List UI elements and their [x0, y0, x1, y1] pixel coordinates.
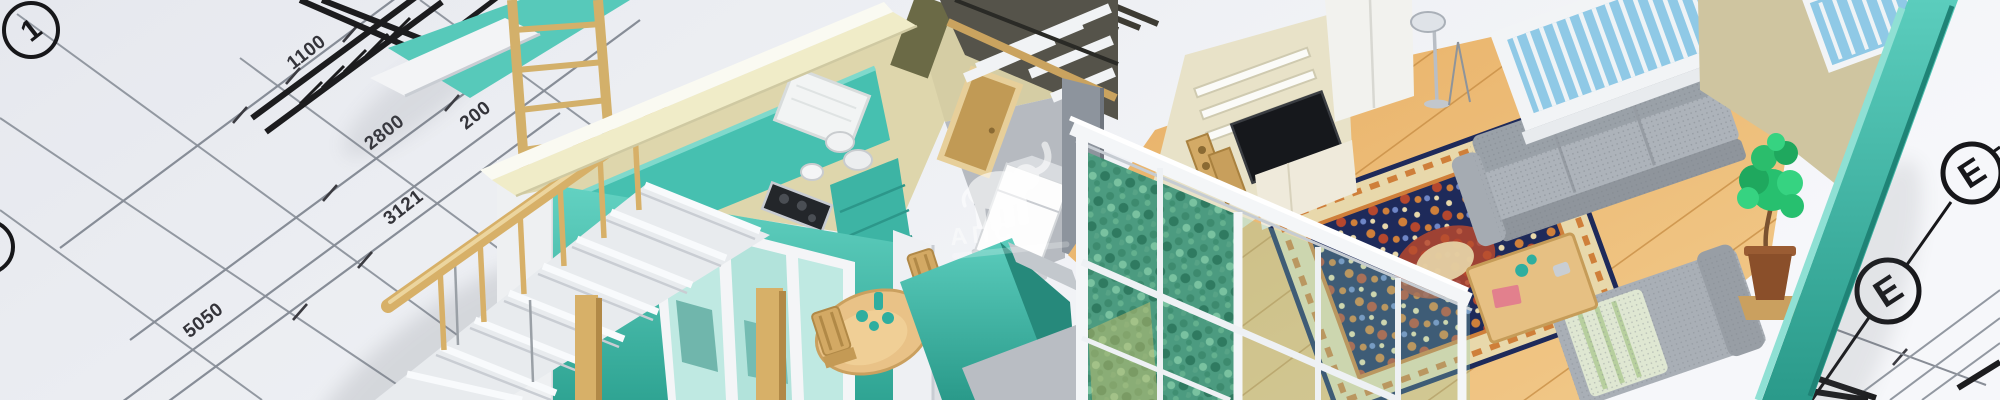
newel-post-left [575, 295, 598, 400]
window-reflection [676, 300, 718, 372]
apartment-render-canvas: 1100 2800 200 3121 5050 1 E E [0, 0, 2000, 400]
newel-post-right [756, 288, 783, 400]
banner-image: 1100 2800 200 3121 5050 1 E E [0, 0, 2000, 400]
